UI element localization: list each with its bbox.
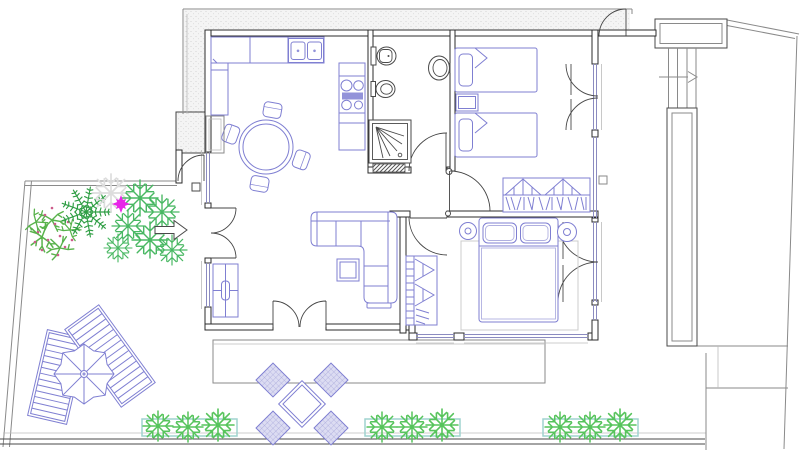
shower-threshold [373,164,405,172]
bedroom-double [406,218,578,330]
outdoor-table [279,381,326,428]
wall-jog-block [176,112,205,153]
nightstand-twin [456,94,478,111]
door-bedroom-twin [446,171,491,216]
outline-shrubs [92,174,187,265]
stair-steps [668,48,696,108]
window-bedroom-twin [566,64,602,130]
door-french-terrace [273,301,326,327]
site-south-boundary [0,439,705,444]
door-bedroom-double [409,217,447,255]
living-room [213,212,397,317]
bathroom [369,47,450,172]
washbasin [429,56,451,80]
wall-north [205,30,656,36]
bedroom-twin [455,48,590,212]
external-stair [655,19,727,346]
radiator [206,116,224,153]
parasol [54,344,114,404]
sill-marker [599,176,607,184]
bidet [371,81,395,98]
shower [369,120,411,163]
planter-plants [143,409,636,442]
floor-plan-canvas [0,0,800,450]
kitchen [206,37,365,193]
floor-plan-page: Apartment floor plan: kitchen with L-cou… [0,0,800,450]
door-entry-double [211,208,236,258]
wall-bedroom-double-west [400,217,406,333]
window-fixed-middle [594,137,608,218]
wardrobe-twin [503,178,590,212]
toilet [371,47,396,65]
wall-south-bedroom [409,333,417,340]
kitchen-counter-left [211,63,228,115]
window-living-lower [202,261,210,309]
single-bed-2 [455,113,537,157]
kitchen-counter-right [339,63,365,76]
wardrobe-double [406,256,437,325]
round-nightstand-left [460,223,477,240]
wall-east [592,30,598,64]
sideboard [213,264,238,317]
garden [23,174,200,265]
flowering-shrub-cluster [23,207,84,261]
garden-west-boundary [3,181,32,447]
kitchen-cooktop [339,76,365,113]
wall-bathroom-east [450,30,455,171]
wall-south-living-1 [205,324,273,330]
wall-garden-jog [176,150,182,183]
door-bathroom [409,133,452,175]
terrace-planters [142,409,638,442]
sofa-foot [367,303,391,308]
sun-deck [28,305,156,425]
coffee-table [337,259,359,281]
dining-table-round [239,120,293,174]
window-living-upper [202,150,210,205]
gate-post [192,183,200,191]
single-bed-1 [455,48,537,92]
double-bed [479,218,558,322]
round-nightstand-right [558,223,577,242]
